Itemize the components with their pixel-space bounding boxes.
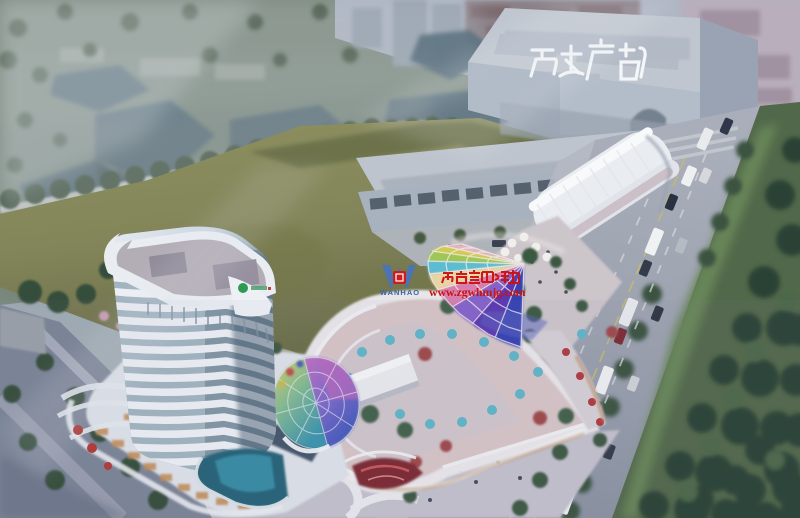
svg-text:www.zgwhmjg.com: www.zgwhmjg.com: [429, 285, 526, 299]
svg-text:WANHAO: WANHAO: [380, 288, 420, 297]
